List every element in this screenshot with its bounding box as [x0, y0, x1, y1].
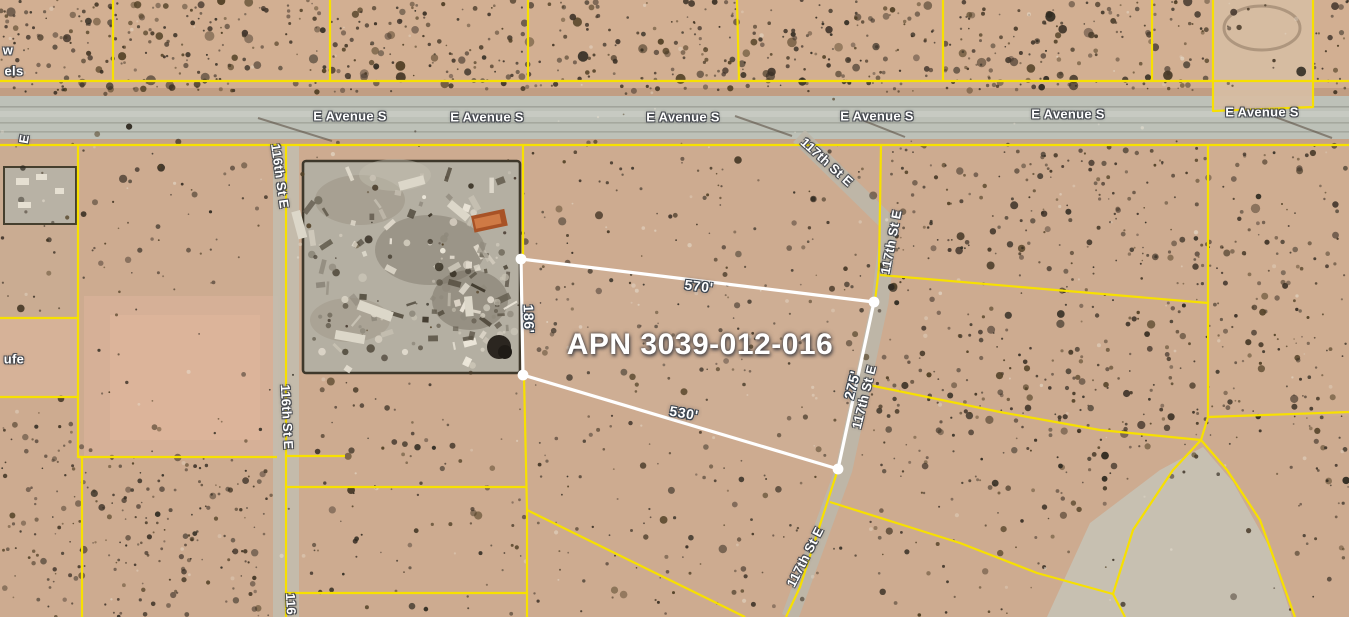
satellite-map[interactable]: APN 3039-012-016 E Avenue SE Avenue SE A… — [0, 0, 1349, 617]
parcel-corner-dot — [869, 297, 880, 308]
map-canvas — [0, 0, 1349, 617]
parcel-corner-dot — [518, 370, 529, 381]
parcel-corner-dot — [516, 254, 527, 265]
parcel-corner-dot — [833, 464, 844, 475]
